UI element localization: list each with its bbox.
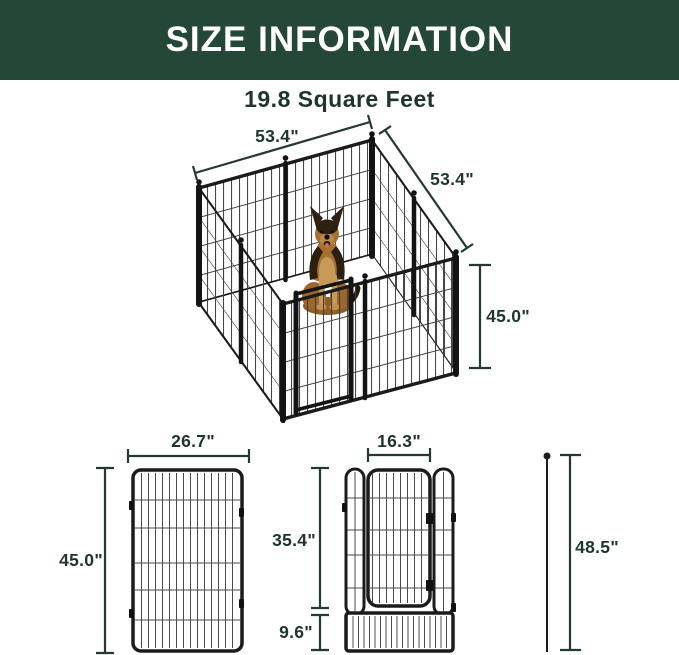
door-panel-diagram: 16.3" 35.4" 9.6" bbox=[272, 431, 456, 651]
pen-height-dimension: 45.0" bbox=[469, 265, 530, 368]
panel-height-label: 45.0" bbox=[59, 550, 103, 570]
panel-dimension-diagrams: 26.7" 45.0" 16.3" bbox=[50, 425, 650, 655]
size-information-infographic: SIZE INFORMATION 19.8 Square Feet bbox=[0, 0, 679, 655]
panel-width-label: 26.7" bbox=[171, 431, 215, 451]
pen-side-depth-label: 53.4" bbox=[430, 169, 474, 189]
playpen-isometric-diagram: 53.4" 53.4" 45.0" bbox=[130, 108, 540, 440]
size-information-banner: SIZE INFORMATION bbox=[0, 0, 679, 80]
door-upper-height-label: 35.4" bbox=[272, 530, 316, 550]
door-width-label: 16.3" bbox=[377, 431, 421, 451]
single-panel-diagram: 26.7" 45.0" bbox=[59, 431, 249, 653]
stake-height-label: 48.5" bbox=[575, 537, 619, 557]
page-title: SIZE INFORMATION bbox=[166, 20, 514, 60]
door-bottom-height-label: 9.6" bbox=[279, 622, 313, 642]
pen-height-label: 45.0" bbox=[486, 306, 530, 326]
ground-stake-diagram: 48.5" bbox=[544, 453, 619, 653]
pen-top-width-label: 53.4" bbox=[255, 126, 299, 146]
